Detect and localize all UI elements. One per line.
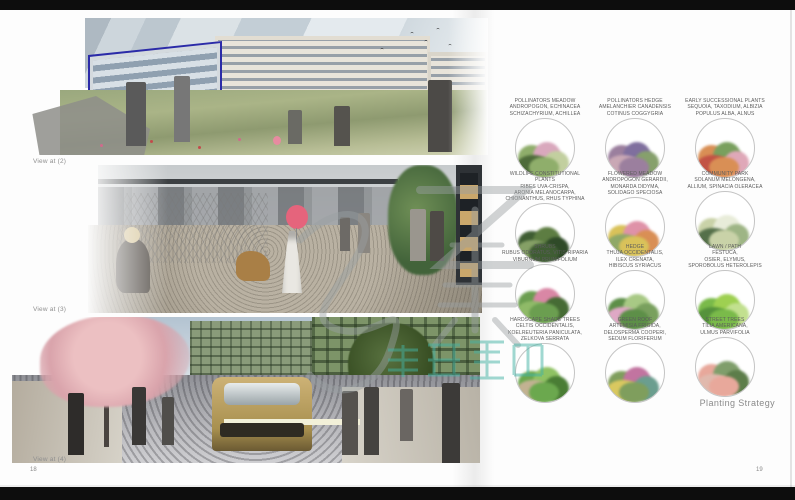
person-cutout [358, 213, 370, 253]
book-spread: View at (2) View at (3) [0, 10, 795, 487]
image-fade [58, 165, 168, 313]
person-cutout [410, 209, 426, 261]
page-number-left: 18 [30, 467, 37, 473]
rendering-rail-yard [58, 165, 482, 313]
palette-cell: HARDSCAPE SHADE TREESCELTIS OCCIDENTALIS… [500, 317, 590, 403]
palette-circle [695, 191, 755, 251]
palette-label: HARDSCAPE SHADE TREESCELTIS OCCIDENTALIS… [500, 317, 590, 342]
palette-circle [695, 118, 755, 178]
person-cutout [400, 389, 413, 441]
person-cutout [174, 76, 190, 142]
flower [238, 138, 241, 141]
person-cutout [162, 397, 174, 445]
view-label-3: View at (3) [33, 306, 66, 313]
palette-label: WILDLIFE CONSTITUTIONAL PLANTSRIBES UVA-… [500, 171, 590, 202]
person-cutout [442, 383, 460, 463]
person-cutout [126, 82, 146, 146]
person-cutout [68, 393, 84, 455]
palette-label: POLLINATORS MEADOWANDROPOGON, ECHINACEAS… [500, 98, 590, 117]
dog [236, 251, 270, 281]
palette-circle [695, 337, 755, 397]
person-cutout [430, 211, 444, 261]
section-caption: Planting Strategy [560, 398, 775, 408]
page-edge-bottom [0, 485, 795, 487]
view-label-4: View at (4) [33, 456, 66, 463]
palette-cell: POLLINATORS HEDGEAMELANCHIER CANADENSISC… [590, 98, 680, 178]
palette-label: LAWN / PATHFESTUCA,OSIER, ELYMUS,SPOROBO… [680, 244, 770, 269]
plant-blob [529, 382, 559, 403]
person-cutout [340, 217, 350, 251]
person-cutout [364, 387, 379, 455]
palette-cell: COMMUNITY PARKSOLANUM MELONGENA,ALLIUM, … [680, 171, 770, 251]
page-number-right: 19 [756, 467, 763, 473]
palette-label: COMMUNITY PARKSOLANUM MELONGENA,ALLIUM, … [680, 171, 770, 190]
person-cutout [342, 391, 358, 455]
plant-blob [709, 376, 739, 397]
planting-palette-grid: POLLINATORS MEADOWANDROPOGON, ECHINACEAS… [500, 98, 772, 404]
image-fade [448, 18, 488, 155]
palette-cell: SHRUBSRUBUS ODORATUS, VITIS RIPARIAVIBUR… [500, 244, 590, 324]
pink-balloon [286, 205, 308, 229]
palette-label: EARLY SUCCESSIONAL PLANTSSEQUOIA, TAXODI… [680, 98, 770, 117]
taxi-car [212, 377, 312, 451]
palette-label: GREEN ROOFARTEMISIA FRIGIDA,DELOSPERMA C… [590, 317, 680, 342]
view-label-2: View at (2) [33, 158, 66, 165]
palette-circle [515, 343, 575, 403]
page-edge-right [790, 10, 792, 487]
rendering-rooftop-meadow [30, 18, 488, 155]
child-cutout [288, 110, 302, 144]
flower [198, 146, 201, 149]
storefront [456, 165, 482, 285]
palette-circle [605, 118, 665, 178]
flower [100, 144, 103, 147]
palette-label: POLLINATORS HEDGEAMELANCHIER CANADENSISC… [590, 98, 680, 117]
rendering-street-view [12, 317, 480, 463]
palette-cell: EARLY SUCCESSIONAL PLANTSSEQUOIA, TAXODI… [680, 98, 770, 178]
palette-circle [515, 264, 575, 324]
pink-balloon [273, 136, 281, 145]
palette-cell: POLLINATORS MEADOWANDROPOGON, ECHINACEAS… [500, 98, 590, 178]
palette-label: HEDGETHUJA OCCIDENTALIS,ILEX CRENATA,HIB… [590, 244, 680, 269]
palette-circle [605, 343, 665, 403]
palette-cell: GREEN ROOFARTEMISIA FRIGIDA,DELOSPERMA C… [590, 317, 680, 403]
child-cutout [334, 106, 350, 146]
palette-label: STREET TREESTILIA AMERICANA,ULMUS PARVIF… [680, 317, 770, 336]
palette-label: SHRUBSRUBUS ODORATUS, VITIS RIPARIAVIBUR… [500, 244, 590, 263]
flower [150, 140, 153, 143]
palette-cell: STREET TREESTILIA AMERICANA,ULMUS PARVIF… [680, 317, 770, 397]
palette-circle [515, 118, 575, 178]
person-cutout [132, 387, 146, 445]
screenshot-stage: View at (2) View at (3) [0, 0, 795, 500]
palette-label: FLOWERED MEADOWANDROPOGON GERARDII,MONAR… [590, 171, 680, 196]
